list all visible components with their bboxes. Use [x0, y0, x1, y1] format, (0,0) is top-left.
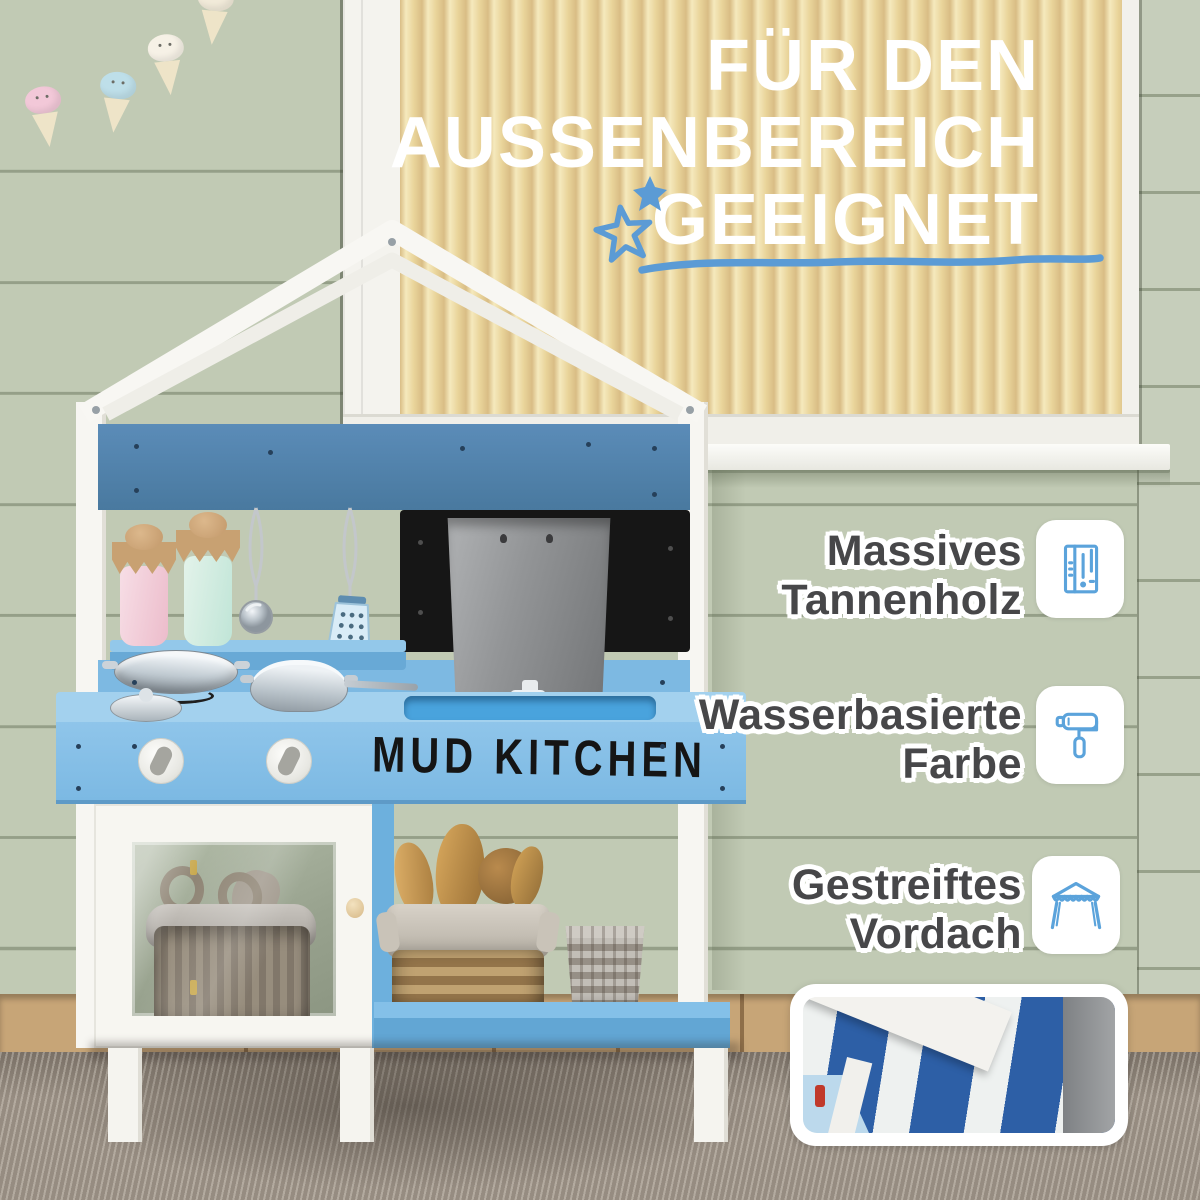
jar-mint — [184, 556, 232, 646]
feature-tannenholz: Massives Tannenholz — [781, 527, 1022, 625]
screw — [134, 444, 139, 449]
screw — [586, 442, 591, 447]
stove-knob — [266, 738, 312, 784]
kitchen-leg — [340, 1048, 374, 1142]
feature-vordach: Gestreiftes Vordach — [792, 861, 1022, 959]
product-label: MUD KITCHEN — [372, 728, 683, 790]
canopy-icon — [1032, 856, 1120, 954]
screw — [460, 446, 465, 451]
screw — [668, 546, 673, 551]
wall-edge — [1063, 997, 1115, 1133]
top-rail — [98, 424, 690, 510]
jar-lid-top — [189, 512, 227, 538]
bottom-shelf — [374, 1002, 730, 1018]
screw — [134, 488, 139, 493]
screw — [418, 540, 423, 545]
screw — [76, 786, 81, 791]
product-marketing-image: FÜR DEN AUSSENBEREICH GEEIGNET — [0, 0, 1200, 1200]
canopy-closeup-photo — [790, 984, 1128, 1146]
cabinet-door-knob — [346, 898, 364, 918]
white-beam — [803, 997, 1012, 1071]
pot-lid — [110, 694, 182, 722]
feature-line: Gestreiftes — [792, 861, 1022, 910]
stove-knob — [138, 738, 184, 784]
jar-lid-top — [125, 524, 163, 550]
canopy-stripes — [803, 997, 1115, 1133]
feature-line: Vordach — [792, 910, 1022, 959]
sink-basin — [404, 696, 656, 720]
glass-reflection — [132, 842, 336, 1016]
screw — [652, 446, 657, 451]
cabinet-door-window — [132, 842, 336, 1016]
screw — [76, 744, 81, 749]
wood-planks-icon — [1036, 520, 1124, 618]
small-basket — [558, 926, 652, 1014]
jar-pink — [120, 566, 168, 646]
screw — [418, 610, 423, 615]
feature-line: Tannenholz — [781, 576, 1022, 625]
screw — [132, 744, 137, 749]
feature-line: Massives — [781, 527, 1022, 576]
feature-line: Wasserbasierte — [699, 691, 1022, 740]
roof-frame — [40, 208, 740, 438]
screw — [660, 680, 665, 685]
tank-keyhole — [546, 534, 553, 543]
screw — [132, 680, 137, 685]
screw — [268, 450, 273, 455]
kitchen-leg — [108, 1048, 142, 1142]
screw — [668, 616, 673, 621]
tank-keyhole — [500, 534, 507, 543]
feature-line: Farbe — [699, 740, 1022, 789]
counter-front: MUD KITCHEN — [56, 722, 746, 804]
play-pot — [250, 660, 348, 712]
screw — [660, 744, 665, 749]
under-cabinet-shadow — [90, 1042, 740, 1060]
kitchen-leg — [694, 1048, 728, 1142]
paint-roller-icon — [1036, 686, 1124, 784]
toy-glimpse — [815, 1085, 825, 1107]
cabinet — [94, 804, 374, 1048]
feature-farbe: Wasserbasierte Farbe — [699, 691, 1022, 789]
screw — [652, 492, 657, 497]
